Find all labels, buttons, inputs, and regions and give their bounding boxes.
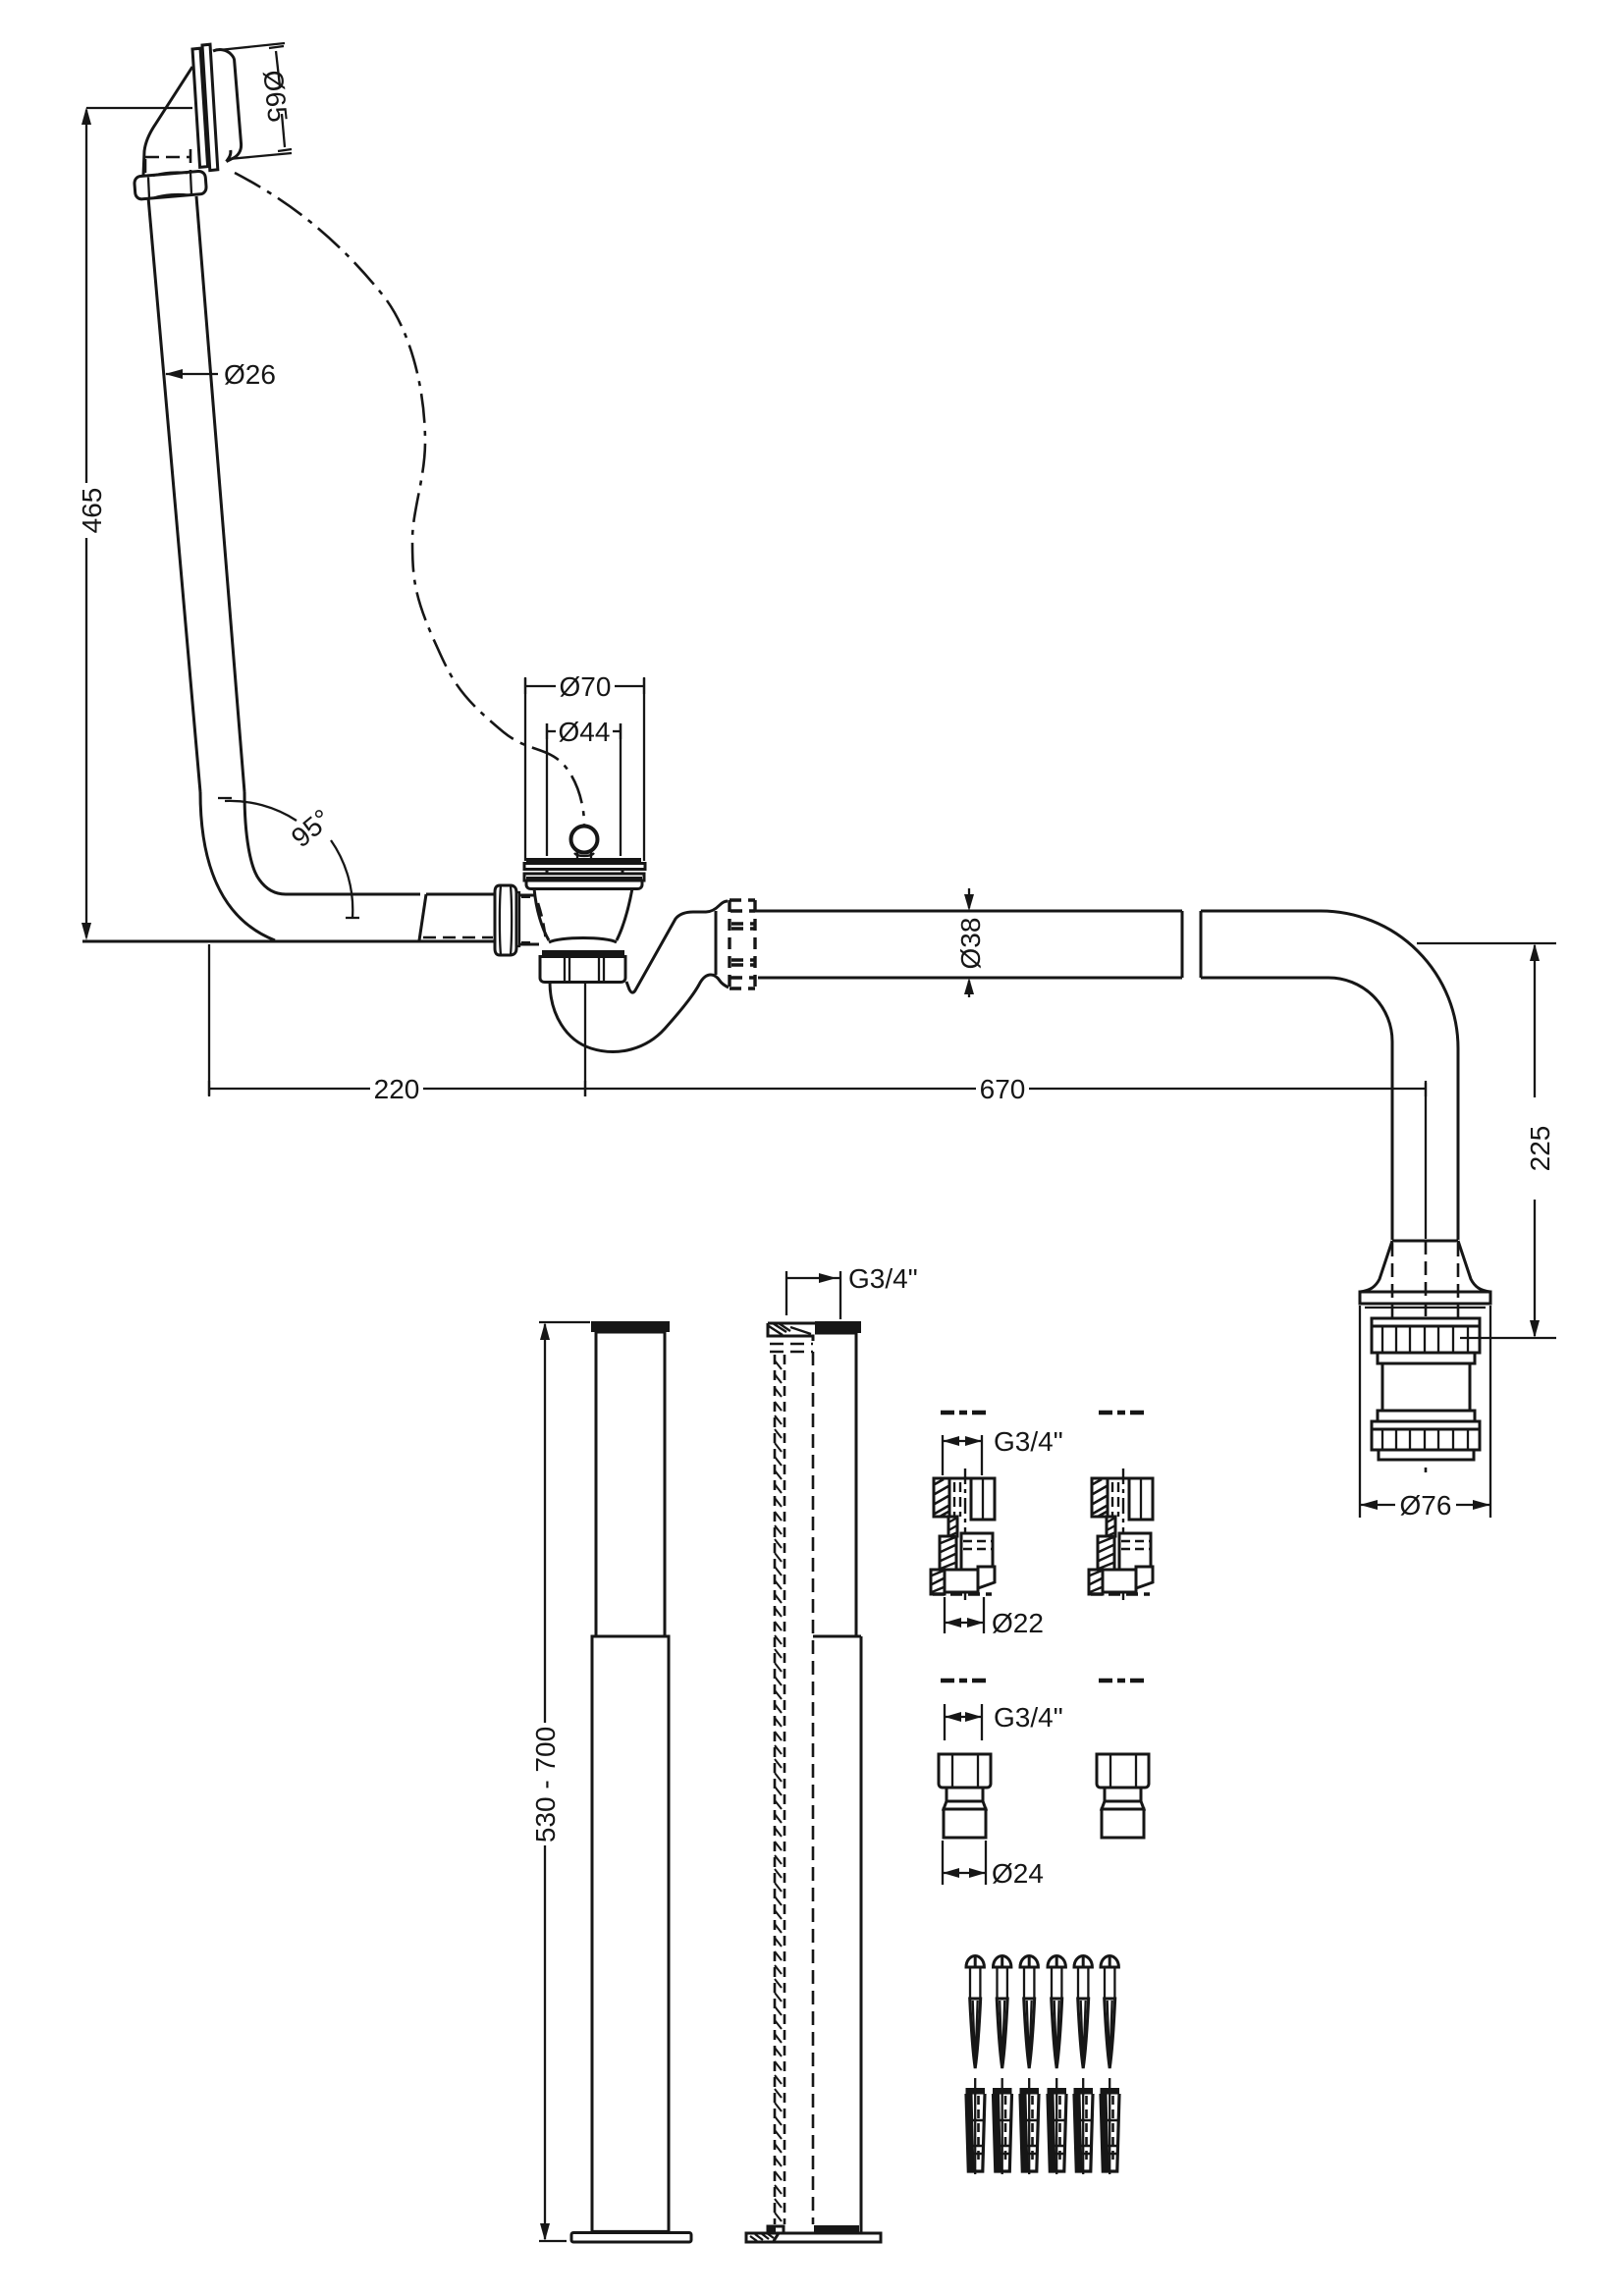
svg-text:Ø76: Ø76 [1400,1490,1452,1521]
svg-text:220: 220 [374,1074,420,1104]
svg-text:Ø26: Ø26 [224,359,276,390]
svg-text:Ø24: Ø24 [992,1858,1044,1889]
svg-text:Ø38: Ø38 [955,918,986,970]
svg-text:670: 670 [980,1074,1026,1104]
svg-text:G3/4": G3/4" [994,1702,1063,1733]
svg-text:Ø22: Ø22 [992,1608,1044,1638]
svg-text:Ø65: Ø65 [257,69,293,124]
svg-text:465: 465 [77,488,107,534]
svg-text:Ø70: Ø70 [560,671,612,702]
svg-text:G3/4": G3/4" [848,1263,918,1294]
svg-text:530 - 700: 530 - 700 [530,1727,561,1842]
svg-text:225: 225 [1525,1126,1555,1172]
svg-text:Ø44: Ø44 [559,717,611,747]
svg-text:G3/4": G3/4" [994,1426,1063,1457]
